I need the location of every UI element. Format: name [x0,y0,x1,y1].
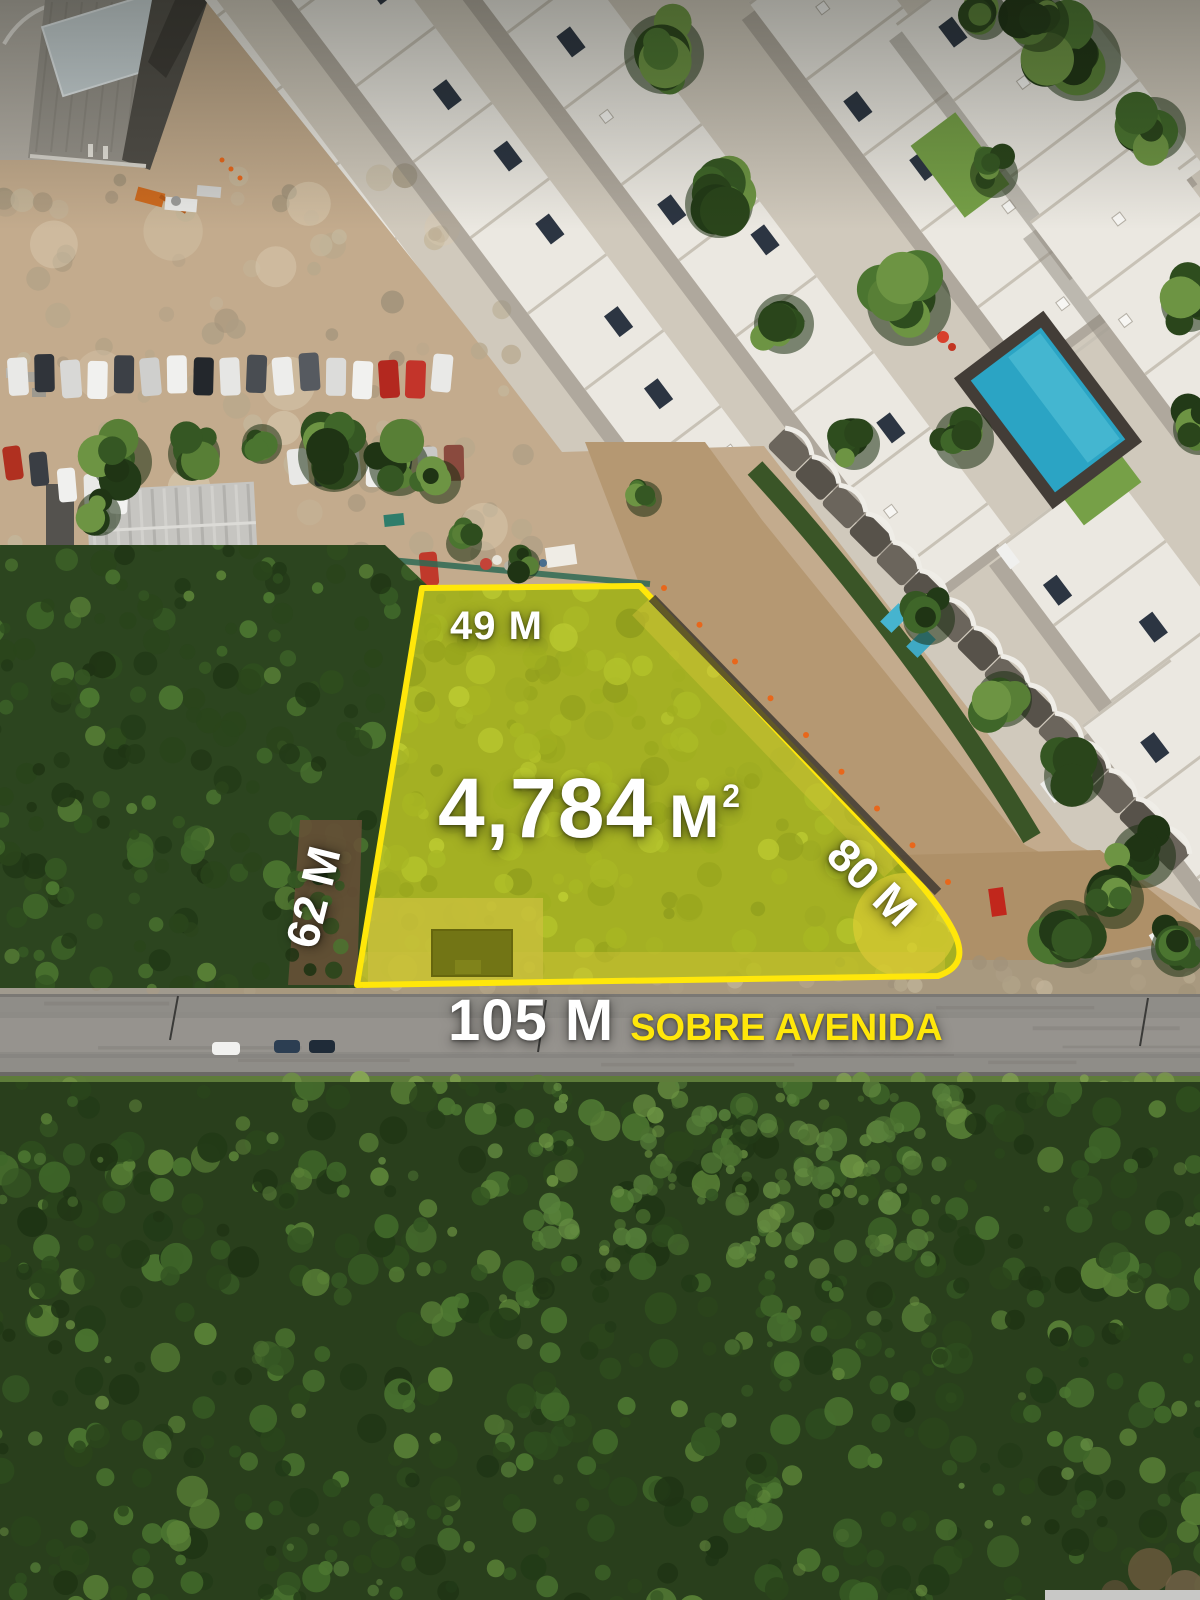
aerial-photo-svg [0,0,1200,1600]
bottom-edge-artifact [1045,1590,1200,1600]
dumpster [383,513,404,527]
top-vignette [0,0,1200,230]
aerial-listing-photo: 49 M 4,784M2 62 M 80 M 105 M SOBRE AVENI… [0,0,1200,1600]
